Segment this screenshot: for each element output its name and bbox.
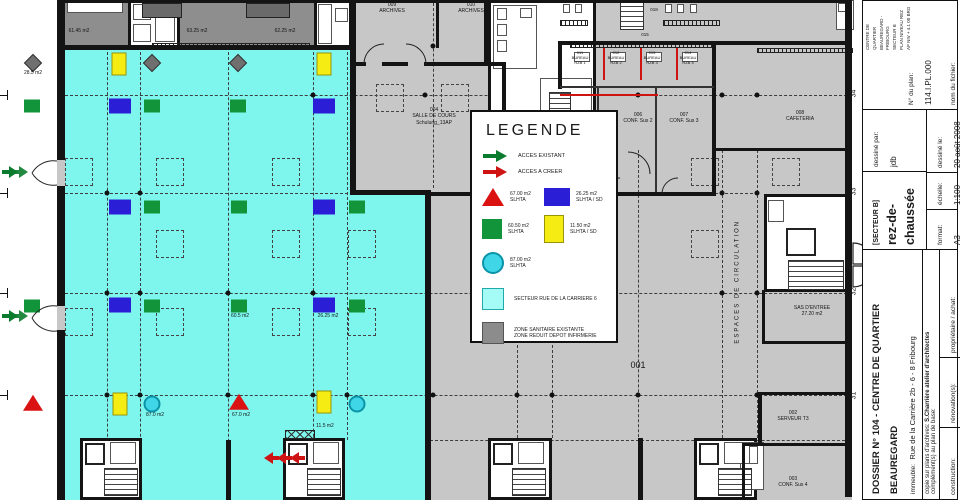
room-label: SAS D'ENTREE 27.20 m2 (780, 305, 844, 318)
legend-yellow-label: 11.50 m2SLHTA / SD (570, 223, 597, 236)
legend-yellow-square-icon (544, 215, 564, 243)
legend-triangle-label: 67.00 m2SLHTA (510, 191, 531, 204)
room-label: 015 (635, 32, 655, 38)
dossier-title: DOSSIER N° 104 - CENTRE DE QUARTIER BEAU… (871, 304, 900, 494)
room-label: 013 BUREAU RZB 3 (638, 50, 666, 65)
drawn-on-field: dessiné le: 20 août 2008 (927, 110, 957, 172)
title-block: DOSSIER N° 104 - CENTRE DE QUARTIER BEAU… (862, 0, 958, 500)
construction-field: construction: 1999 (940, 427, 960, 499)
room-label: 67.0 m2 (224, 412, 258, 418)
building-address: Rue de la Carrière 2b - 6 - 8 Fribourg (908, 336, 917, 459)
grid-axis-label: 34 (850, 90, 857, 98)
room-label: 11.5 m2 (308, 423, 342, 429)
level-field: [SECTEUR B] rez-de-chaussée (863, 171, 926, 249)
legend-red-arrow-icon (482, 166, 508, 178)
legend-blue-label: 26.25 m2SLHTA / SD (576, 191, 603, 204)
room-label: 62.25 m2 (264, 28, 306, 34)
format-field: format: A3 (927, 209, 957, 249)
room-label: 011 BUREAU RZB 1 (566, 50, 594, 65)
complement-label: complément(s) au plan de base: (931, 408, 937, 494)
room-label: 26.25 m2 (308, 313, 348, 319)
legend-zone-label: ZONE SANITAIRE EXISTANTEZONE REDUIT DEPO… (514, 327, 597, 340)
legend-title: LEGENDE (486, 122, 606, 140)
drawn-by-field: dessiné par: jdb (863, 110, 926, 171)
plan-no-label: N° du plan: (908, 73, 915, 105)
grid-axis-label: 33 (850, 188, 857, 196)
room-label: ESPACES DE CIRCULATION (734, 212, 742, 352)
project-info: CENTRE DE QUARTIER BEAUREGARD - FRIBOURG… (865, 4, 912, 50)
owner-field: propriétaire / achat: CPPEF (940, 251, 960, 357)
room-label: 012 BUREAU RZB 2 (602, 50, 630, 65)
room-label: 006 CONF. Sus 2 (614, 112, 662, 125)
room-label: 28.5 m2 (14, 70, 52, 76)
room-label: 010 ARCHIVES (450, 2, 492, 15)
legend-red-triangle-icon (482, 188, 504, 206)
legend-green-square-icon (482, 219, 502, 239)
room-label: 001 (620, 360, 656, 371)
legend-zone-swatch (482, 322, 504, 344)
legend-circle-label: 87.00 m2SLHTA (510, 257, 531, 270)
renovation-field: rénovation(s): (940, 357, 960, 427)
legend-sector-swatch (482, 288, 504, 310)
room-label: 007 CONF. Sus 3 (660, 112, 708, 125)
legend-panel: LEGENDE ACCES EXISTANT ACCES A CREER 67.… (470, 110, 618, 343)
room-label: 004 SALLE DE COURS Schulung_13AP (395, 107, 473, 126)
room-label: 008 CAFETERIA (774, 110, 826, 123)
grid-axis-label: 31 (850, 392, 857, 400)
legend-acces-existant: ACCES EXISTANT (518, 153, 565, 159)
room-label: 002 SERVEUR T3 (766, 410, 820, 423)
scale-field: échelle: 1:100 (927, 172, 957, 209)
room-label: 61.45 m2 (58, 28, 100, 34)
room-label: 003 CONF. Sus 4 (766, 476, 820, 489)
legend-sector-label: SECTEUR RUE DE LA CARRIERE 6 (514, 296, 597, 302)
legend-acces-a-creer: ACCES A CREER (518, 169, 562, 175)
legend-green-arrow-icon (482, 150, 508, 162)
room-label: 014 BUREAU RZB 4 (674, 50, 702, 65)
room-label: 87.0 m2 (138, 412, 172, 418)
legend-cyan-circle-icon (482, 252, 504, 274)
grid-axis-label: 32 (850, 288, 857, 296)
legend-green-label: 60.50 m2SLHTA (508, 223, 529, 236)
room-label: 60.5 m2 (222, 313, 258, 319)
plan-no: 114.I.PL.000 (924, 60, 933, 105)
legend-blue-square-icon (544, 188, 570, 206)
room-label: 018 (644, 7, 664, 13)
level-name: rez-de-chaussée (885, 188, 917, 245)
room-label: 63.25 m2 (176, 28, 218, 34)
file-label: nom du fichier: (950, 62, 957, 105)
room-label: 009 ARCHIVES (371, 2, 413, 15)
